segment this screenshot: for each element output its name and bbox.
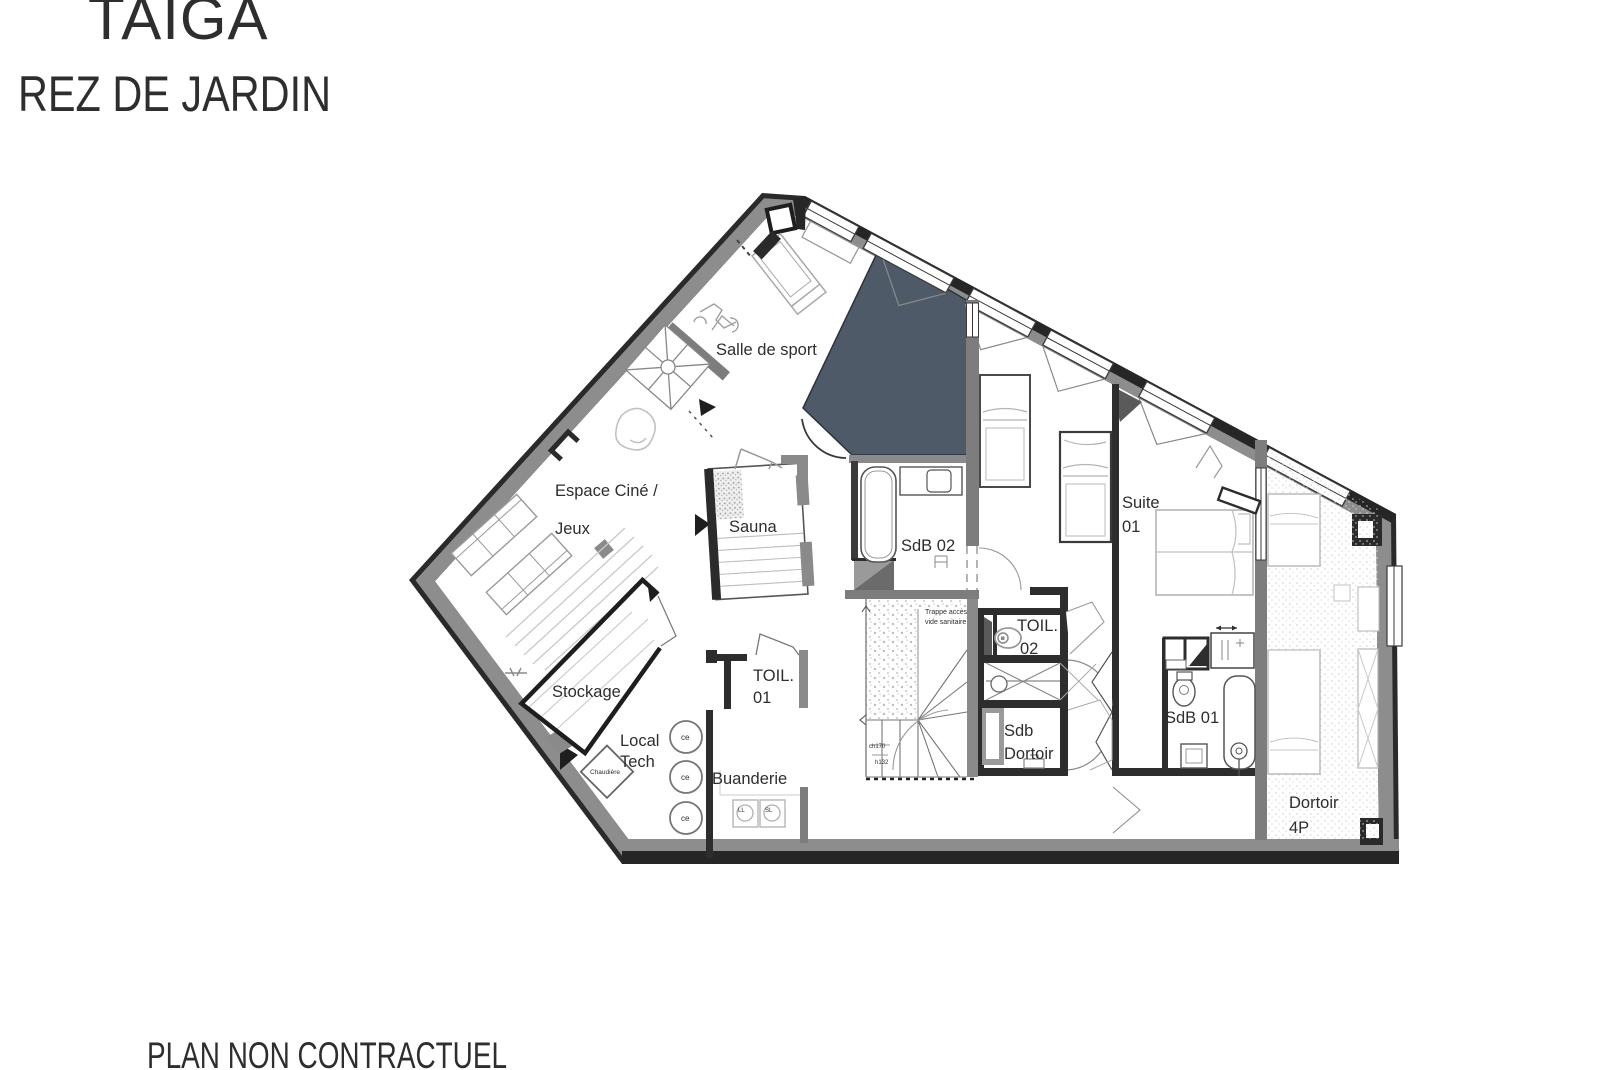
svg-text:Sauna: Sauna xyxy=(729,518,778,536)
svg-text:TAÏGA: TAÏGA xyxy=(88,0,269,52)
svg-text:Sdb: Sdb xyxy=(1004,722,1033,740)
svg-text:ch170: ch170 xyxy=(869,744,886,750)
svg-text:SdB 01: SdB 01 xyxy=(1165,709,1219,727)
svg-text:ce: ce xyxy=(681,773,690,782)
svg-text:Suite: Suite xyxy=(1122,494,1160,512)
svg-text:02: 02 xyxy=(1020,640,1038,658)
svg-text:Chaudière: Chaudière xyxy=(590,769,620,776)
svg-text:h132: h132 xyxy=(875,760,889,766)
svg-text:REZ DE JARDIN: REZ DE JARDIN xyxy=(18,66,331,122)
svg-text:TOIL.: TOIL. xyxy=(1017,617,1058,635)
svg-text:Dortoir: Dortoir xyxy=(1004,745,1054,763)
svg-text:01: 01 xyxy=(753,689,771,707)
svg-text:Trappe accès: Trappe accès xyxy=(925,609,968,616)
svg-text:SdB 02: SdB 02 xyxy=(901,537,955,555)
svg-text:Tech: Tech xyxy=(620,753,655,771)
svg-text:4P: 4P xyxy=(1289,819,1309,837)
svg-text:LL: LL xyxy=(738,808,745,814)
svg-text:01: 01 xyxy=(1122,518,1140,536)
svg-text:Stockage: Stockage xyxy=(552,683,621,701)
svg-text:PLAN NON CONTRACTUEL: PLAN NON CONTRACTUEL xyxy=(147,1035,507,1070)
svg-text:Buanderie: Buanderie xyxy=(712,770,787,788)
svg-text:Jeux: Jeux xyxy=(555,520,591,538)
svg-text:ce: ce xyxy=(681,814,690,823)
svg-text:vide sanitaire: vide sanitaire xyxy=(925,619,966,626)
svg-text:Dortoir: Dortoir xyxy=(1289,794,1339,812)
svg-text:ce: ce xyxy=(681,733,690,742)
svg-text:TOIL.: TOIL. xyxy=(753,667,794,685)
svg-text:Local: Local xyxy=(620,732,659,750)
svg-text:SL: SL xyxy=(765,808,773,814)
svg-text:Salle de sport: Salle de sport xyxy=(716,341,817,359)
svg-text:Espace Ciné /: Espace Ciné / xyxy=(555,482,658,500)
